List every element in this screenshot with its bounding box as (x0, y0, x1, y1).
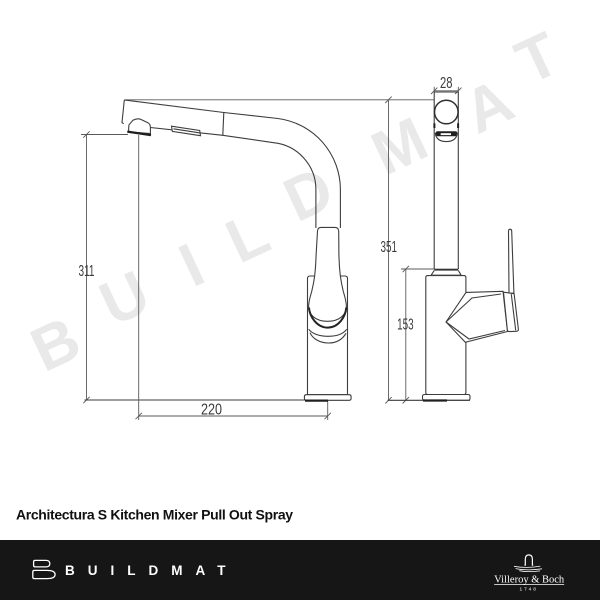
svg-text:Villeroy & Boch: Villeroy & Boch (494, 574, 564, 585)
svg-text:220: 220 (201, 402, 222, 419)
svg-text:BUILDMAT: BUILDMAT (65, 563, 238, 578)
svg-text:28: 28 (440, 75, 453, 92)
svg-text:351: 351 (381, 239, 398, 256)
svg-text:1748: 1748 (520, 587, 538, 593)
svg-text:311: 311 (79, 263, 95, 280)
svg-text:153: 153 (397, 317, 414, 334)
svg-text:Architectura S Kitchen Mixer P: Architectura S Kitchen Mixer Pull Out Sp… (16, 506, 293, 522)
